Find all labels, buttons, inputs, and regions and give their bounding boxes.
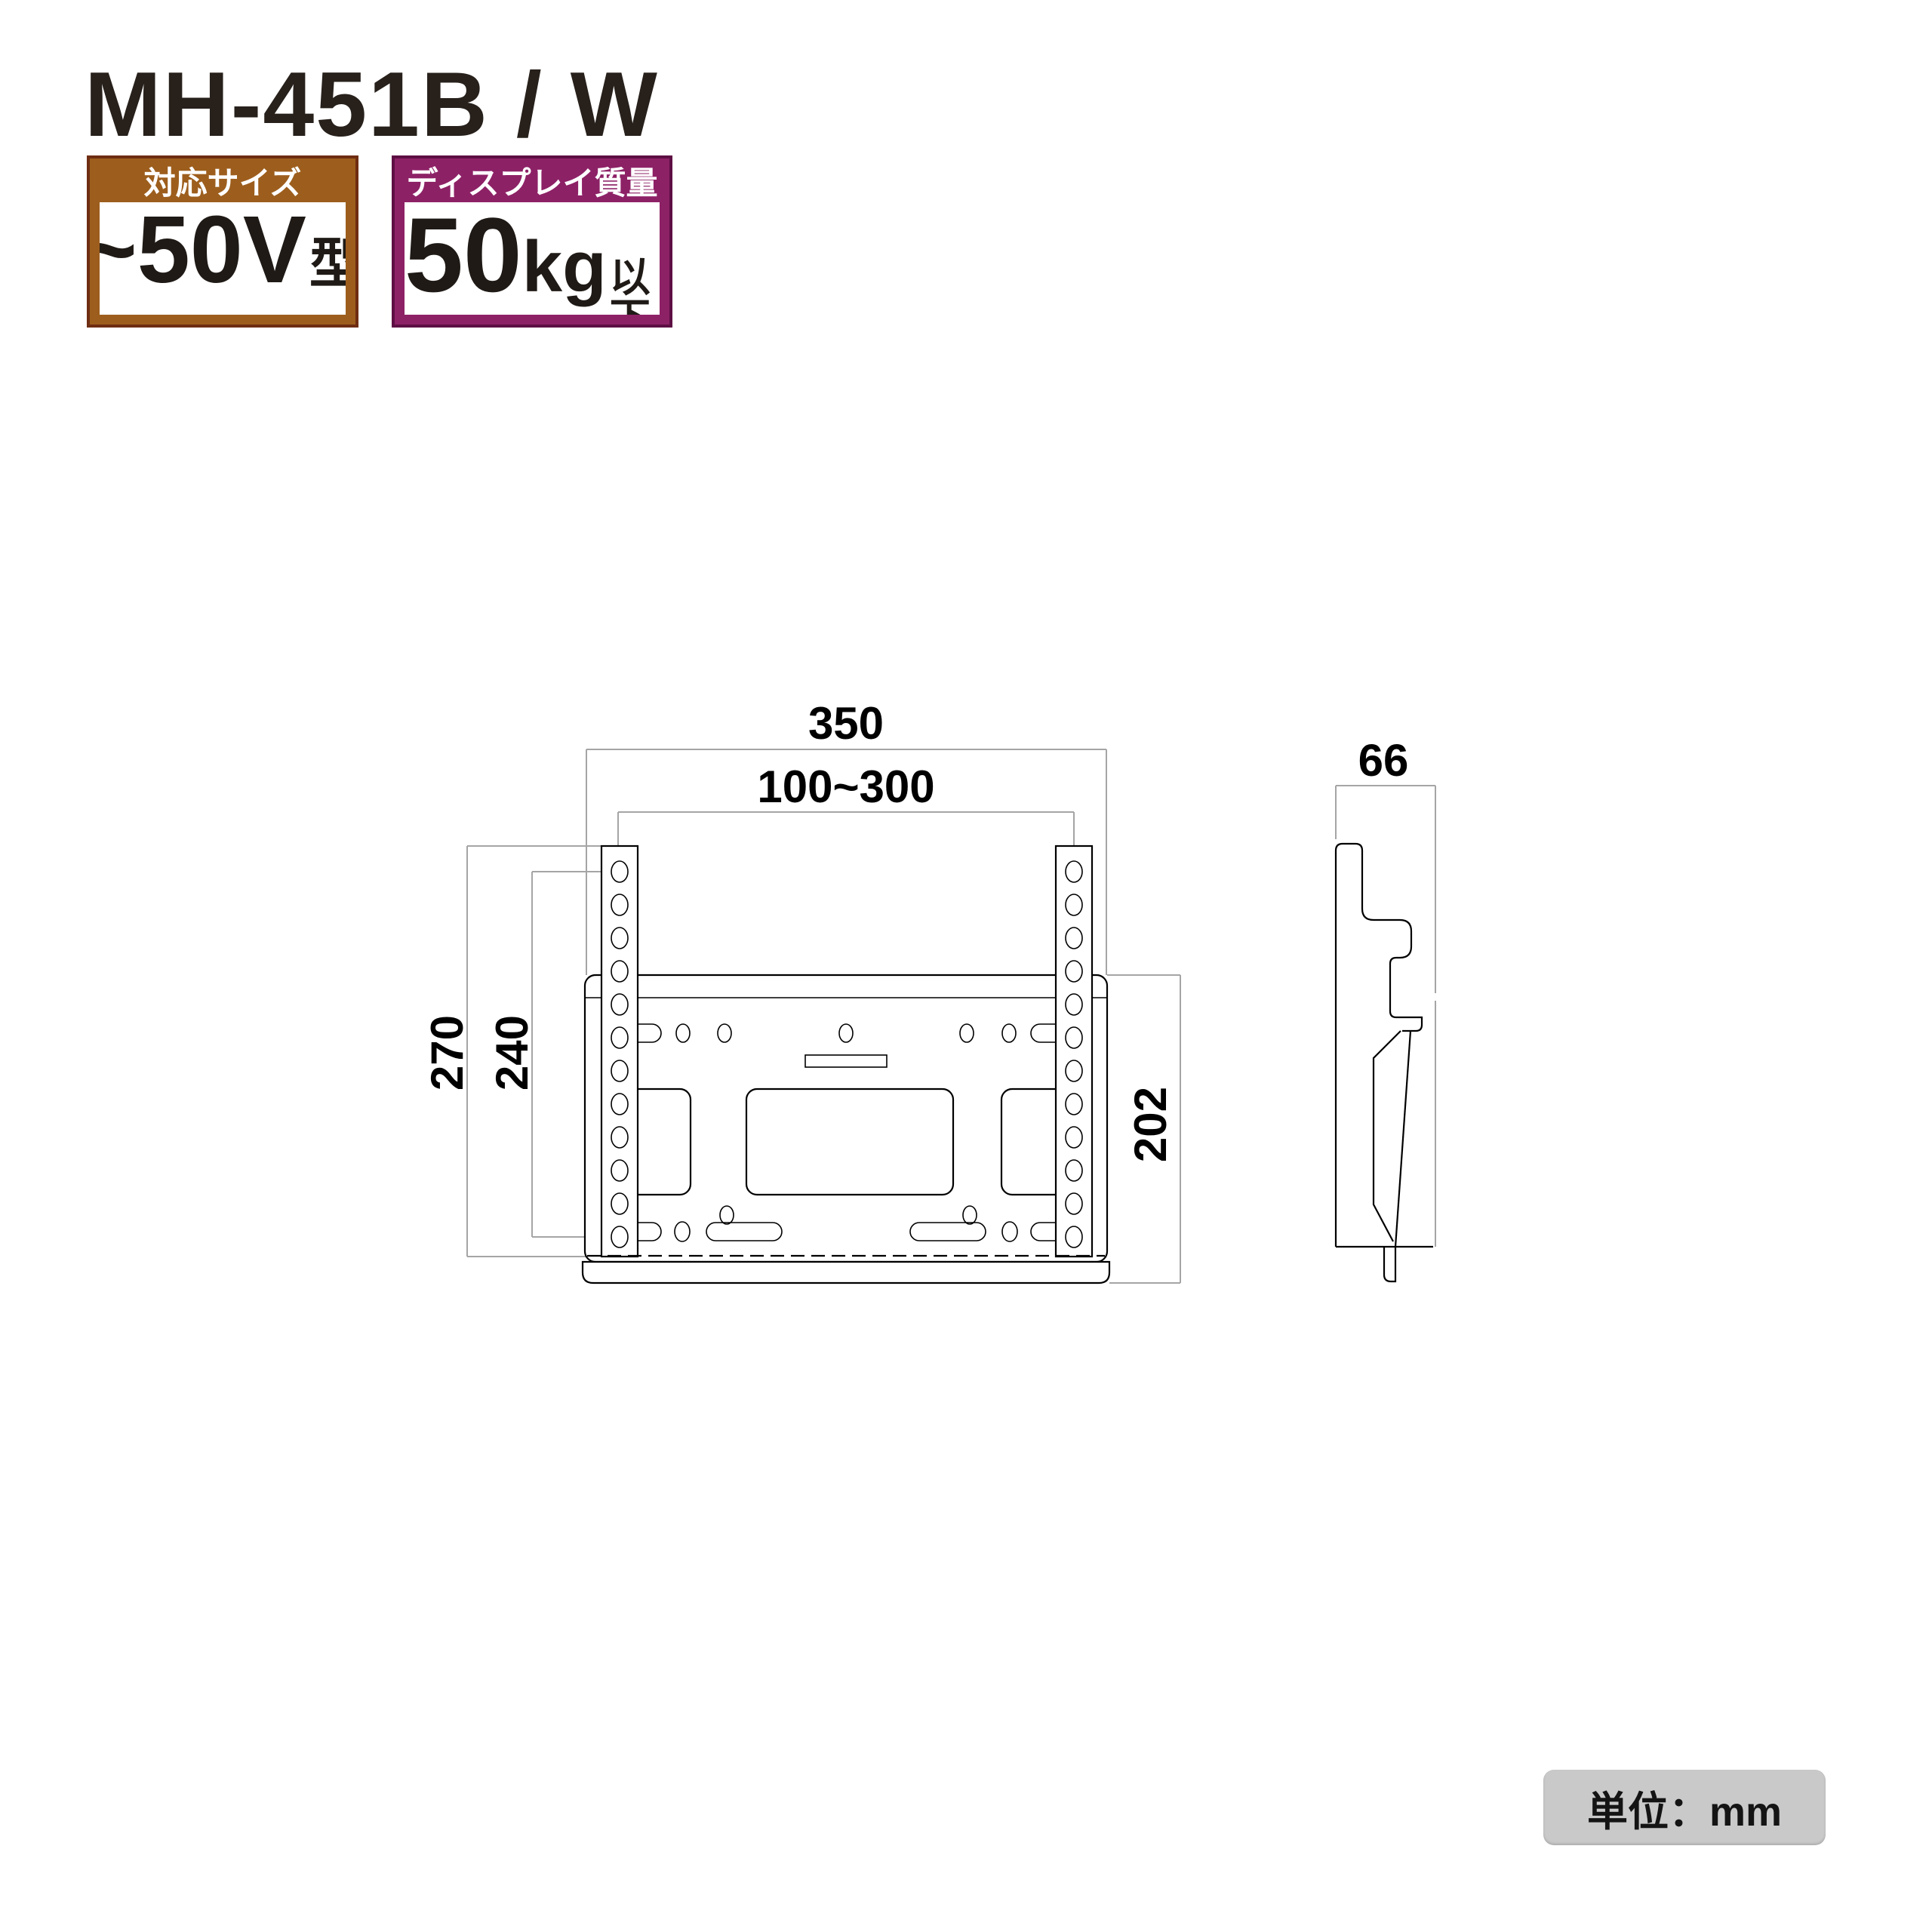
dim-front-width: 350 — [808, 698, 884, 749]
side-inner-face-line — [1374, 1031, 1401, 1241]
dim-hole-pitch: 240 — [487, 1015, 537, 1091]
left-bracket-arm — [601, 846, 638, 1257]
dim-side-depth: 66 — [1358, 735, 1409, 786]
dim-slide-range: 100~300 — [757, 761, 934, 812]
spec-sheet: MH-451B / W 対応サイズ ~50V型 ディスプレイ質量 50kg以下 — [0, 0, 1932, 1932]
dim-bracket-height: 270 — [422, 1015, 472, 1091]
front-view — [583, 846, 1109, 1283]
bottom-lip — [583, 1262, 1109, 1283]
side-view — [1336, 844, 1433, 1281]
technical-drawing: 350 100~300 270 240 202 66 — [0, 0, 1932, 1932]
right-bracket-arm — [1056, 846, 1092, 1257]
side-foot-tab — [1384, 1247, 1395, 1281]
side-front-face-line — [1395, 1031, 1411, 1247]
dim-plate-height: 202 — [1125, 1087, 1176, 1162]
unit-note: 単位：mm — [1543, 1770, 1826, 1845]
center-cutout — [746, 1089, 953, 1195]
